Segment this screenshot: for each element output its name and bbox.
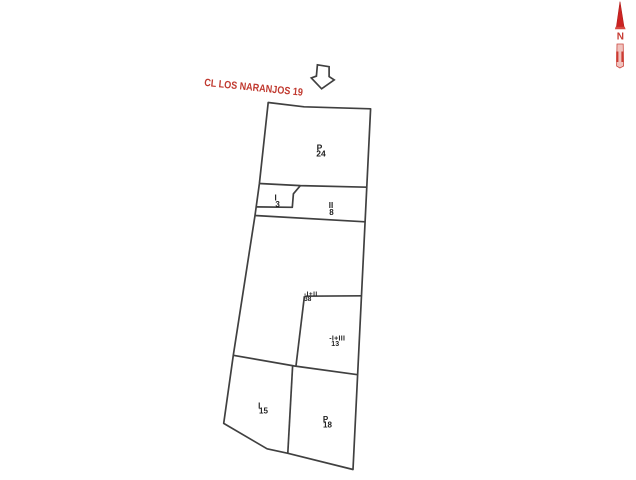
svg-text:24: 24	[316, 148, 326, 158]
svg-text:3: 3	[275, 200, 280, 209]
svg-text:38: 38	[304, 296, 312, 303]
svg-text:N: N	[617, 32, 624, 43]
svg-text:15: 15	[259, 407, 268, 416]
svg-text:CL LOS NARANJOS 19: CL LOS NARANJOS 19	[204, 77, 304, 99]
svg-text:13: 13	[331, 341, 339, 348]
svg-text:18: 18	[323, 421, 332, 430]
svg-text:8: 8	[329, 208, 334, 217]
